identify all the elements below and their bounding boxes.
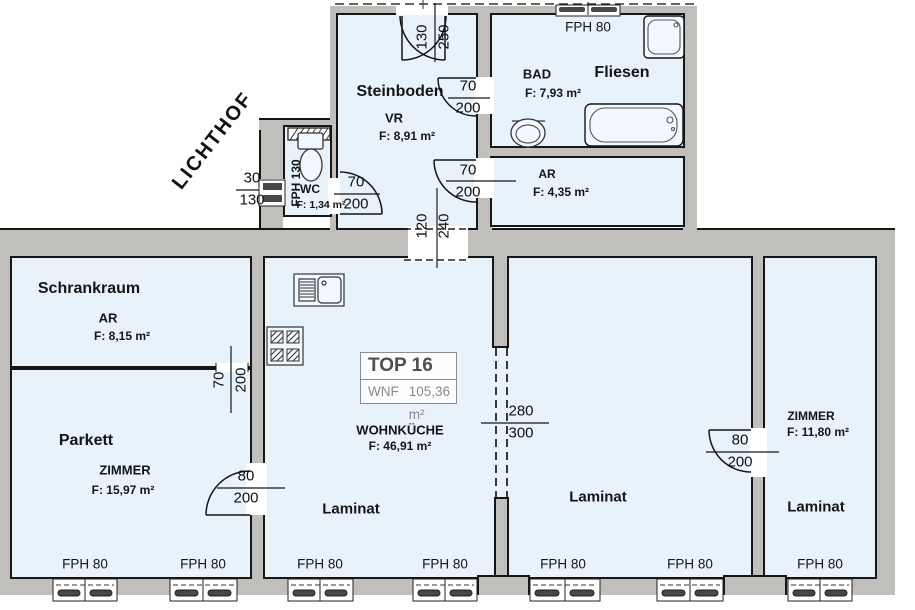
fph80-label: FPH 80 bbox=[62, 557, 108, 572]
dim-bottom: 200 bbox=[234, 367, 249, 392]
dim-top: 120 bbox=[415, 213, 430, 238]
schrank-area-label: F: 8,15 m² bbox=[94, 329, 150, 343]
vr-name-label: VR bbox=[385, 111, 403, 126]
dim-top: 80 bbox=[732, 433, 749, 448]
dim-wc-window: 30 130 bbox=[239, 171, 264, 208]
dim-top: 280 bbox=[508, 404, 533, 419]
window-symbol bbox=[170, 579, 237, 601]
vr-area-label: F: 8,91 m² bbox=[379, 129, 435, 143]
unit-wnf-value: 105,36 m² bbox=[409, 380, 456, 403]
dim-bottom: 200 bbox=[727, 455, 752, 470]
fph80-label: FPH 80 bbox=[422, 557, 468, 572]
dim-bottom: 240 bbox=[437, 213, 452, 238]
washbasin-icon bbox=[511, 119, 545, 147]
dim-bottom: 130 bbox=[239, 193, 264, 208]
dim-top: 70 bbox=[460, 163, 477, 178]
window-symbol bbox=[288, 579, 353, 601]
unit-info-box: TOP 16 WNF 105,36 m² bbox=[360, 352, 457, 404]
stove-icon bbox=[267, 327, 303, 365]
dim-schrank-door: 70 200 bbox=[212, 367, 249, 392]
parkett-area-label: F: 15,97 m² bbox=[92, 483, 155, 497]
dim-mid-opening: 280 300 bbox=[508, 404, 533, 441]
vr-floor-label: Steinboden bbox=[356, 83, 443, 101]
parkett-type-label: ZIMMER bbox=[99, 463, 150, 478]
dim-parkett-door: 80 200 bbox=[233, 469, 258, 506]
fph80-label: FPH 80 bbox=[667, 557, 713, 572]
dim-bottom: 250 bbox=[437, 24, 452, 49]
bad-area-label: F: 7,93 m² bbox=[525, 86, 581, 100]
right-type-label: ZIMMER bbox=[787, 409, 834, 423]
schrank-type-label: AR bbox=[99, 311, 118, 326]
dim-entrance: 130 250 bbox=[415, 24, 452, 49]
dim-top: 70 bbox=[460, 79, 477, 94]
unit-wnf-label: WNF bbox=[368, 380, 399, 403]
kitchen-area-label: F: 46,91 m² bbox=[369, 439, 432, 453]
window-symbol bbox=[53, 579, 117, 601]
dim-wc-door: 70 200 bbox=[343, 175, 368, 212]
window-symbol bbox=[413, 579, 477, 601]
dim-bottom: 200 bbox=[343, 197, 368, 212]
wc-area-label: F: 1,34 m² bbox=[296, 199, 345, 211]
dim-ar-door: 70 200 bbox=[455, 163, 480, 200]
bad-name-label: BAD bbox=[523, 67, 551, 82]
kitchen-name-label: WOHNKÜCHE bbox=[356, 423, 443, 438]
fph80-label: FPH 80 bbox=[797, 557, 843, 572]
shower-icon bbox=[644, 16, 684, 58]
dim-top: 70 bbox=[348, 175, 365, 190]
mid-floor-label: Laminat bbox=[569, 489, 627, 506]
window-symbol bbox=[657, 579, 723, 601]
kitchen-floor-label: Laminat bbox=[322, 501, 380, 518]
dim-top: 80 bbox=[238, 469, 255, 484]
dim-bottom: 300 bbox=[508, 426, 533, 441]
dimension-lines bbox=[216, 3, 779, 488]
window-symbols-bottom bbox=[53, 579, 852, 601]
ar-top-area-label: F: 4,35 m² bbox=[533, 185, 589, 199]
dim-bad-door: 70 200 bbox=[455, 79, 480, 116]
unit-wnf: WNF 105,36 m² bbox=[361, 380, 456, 403]
right-floor-label: Laminat bbox=[787, 499, 845, 516]
unit-title: TOP 16 bbox=[361, 353, 456, 380]
dim-bottom: 200 bbox=[455, 185, 480, 200]
fph80-label-top: FPH 80 bbox=[565, 20, 611, 35]
schrankraum-label: Schrankraum bbox=[38, 280, 140, 298]
dim-bottom: 200 bbox=[455, 101, 480, 116]
dim-top: 30 bbox=[244, 171, 261, 186]
dim-passage: 120 240 bbox=[415, 213, 452, 238]
right-area-label: F: 11,80 m² bbox=[787, 425, 849, 439]
floor-plan: LICHTHOF Steinboden VR F: 8,91 m² BAD F:… bbox=[0, 0, 915, 610]
ar-top-name-label: AR bbox=[538, 167, 555, 181]
bad-floor-label: Fliesen bbox=[594, 64, 649, 82]
wc-window-label: FPH 130 bbox=[289, 159, 303, 206]
kitchen-sink-icon bbox=[294, 274, 344, 306]
window-symbol bbox=[530, 579, 600, 601]
bathtub-icon bbox=[585, 104, 683, 146]
wc-name-label: WC bbox=[300, 182, 320, 196]
parkett-floor-label: Parkett bbox=[59, 432, 113, 450]
fph80-label: FPH 80 bbox=[297, 557, 343, 572]
dim-top: 70 bbox=[212, 372, 227, 389]
fph80-label: FPH 80 bbox=[540, 557, 586, 572]
dim-right-door: 80 200 bbox=[727, 433, 752, 470]
fph80-label: FPH 80 bbox=[180, 557, 226, 572]
window-symbol bbox=[788, 579, 852, 601]
dim-bottom: 200 bbox=[233, 491, 258, 506]
dim-top: 130 bbox=[415, 24, 430, 49]
